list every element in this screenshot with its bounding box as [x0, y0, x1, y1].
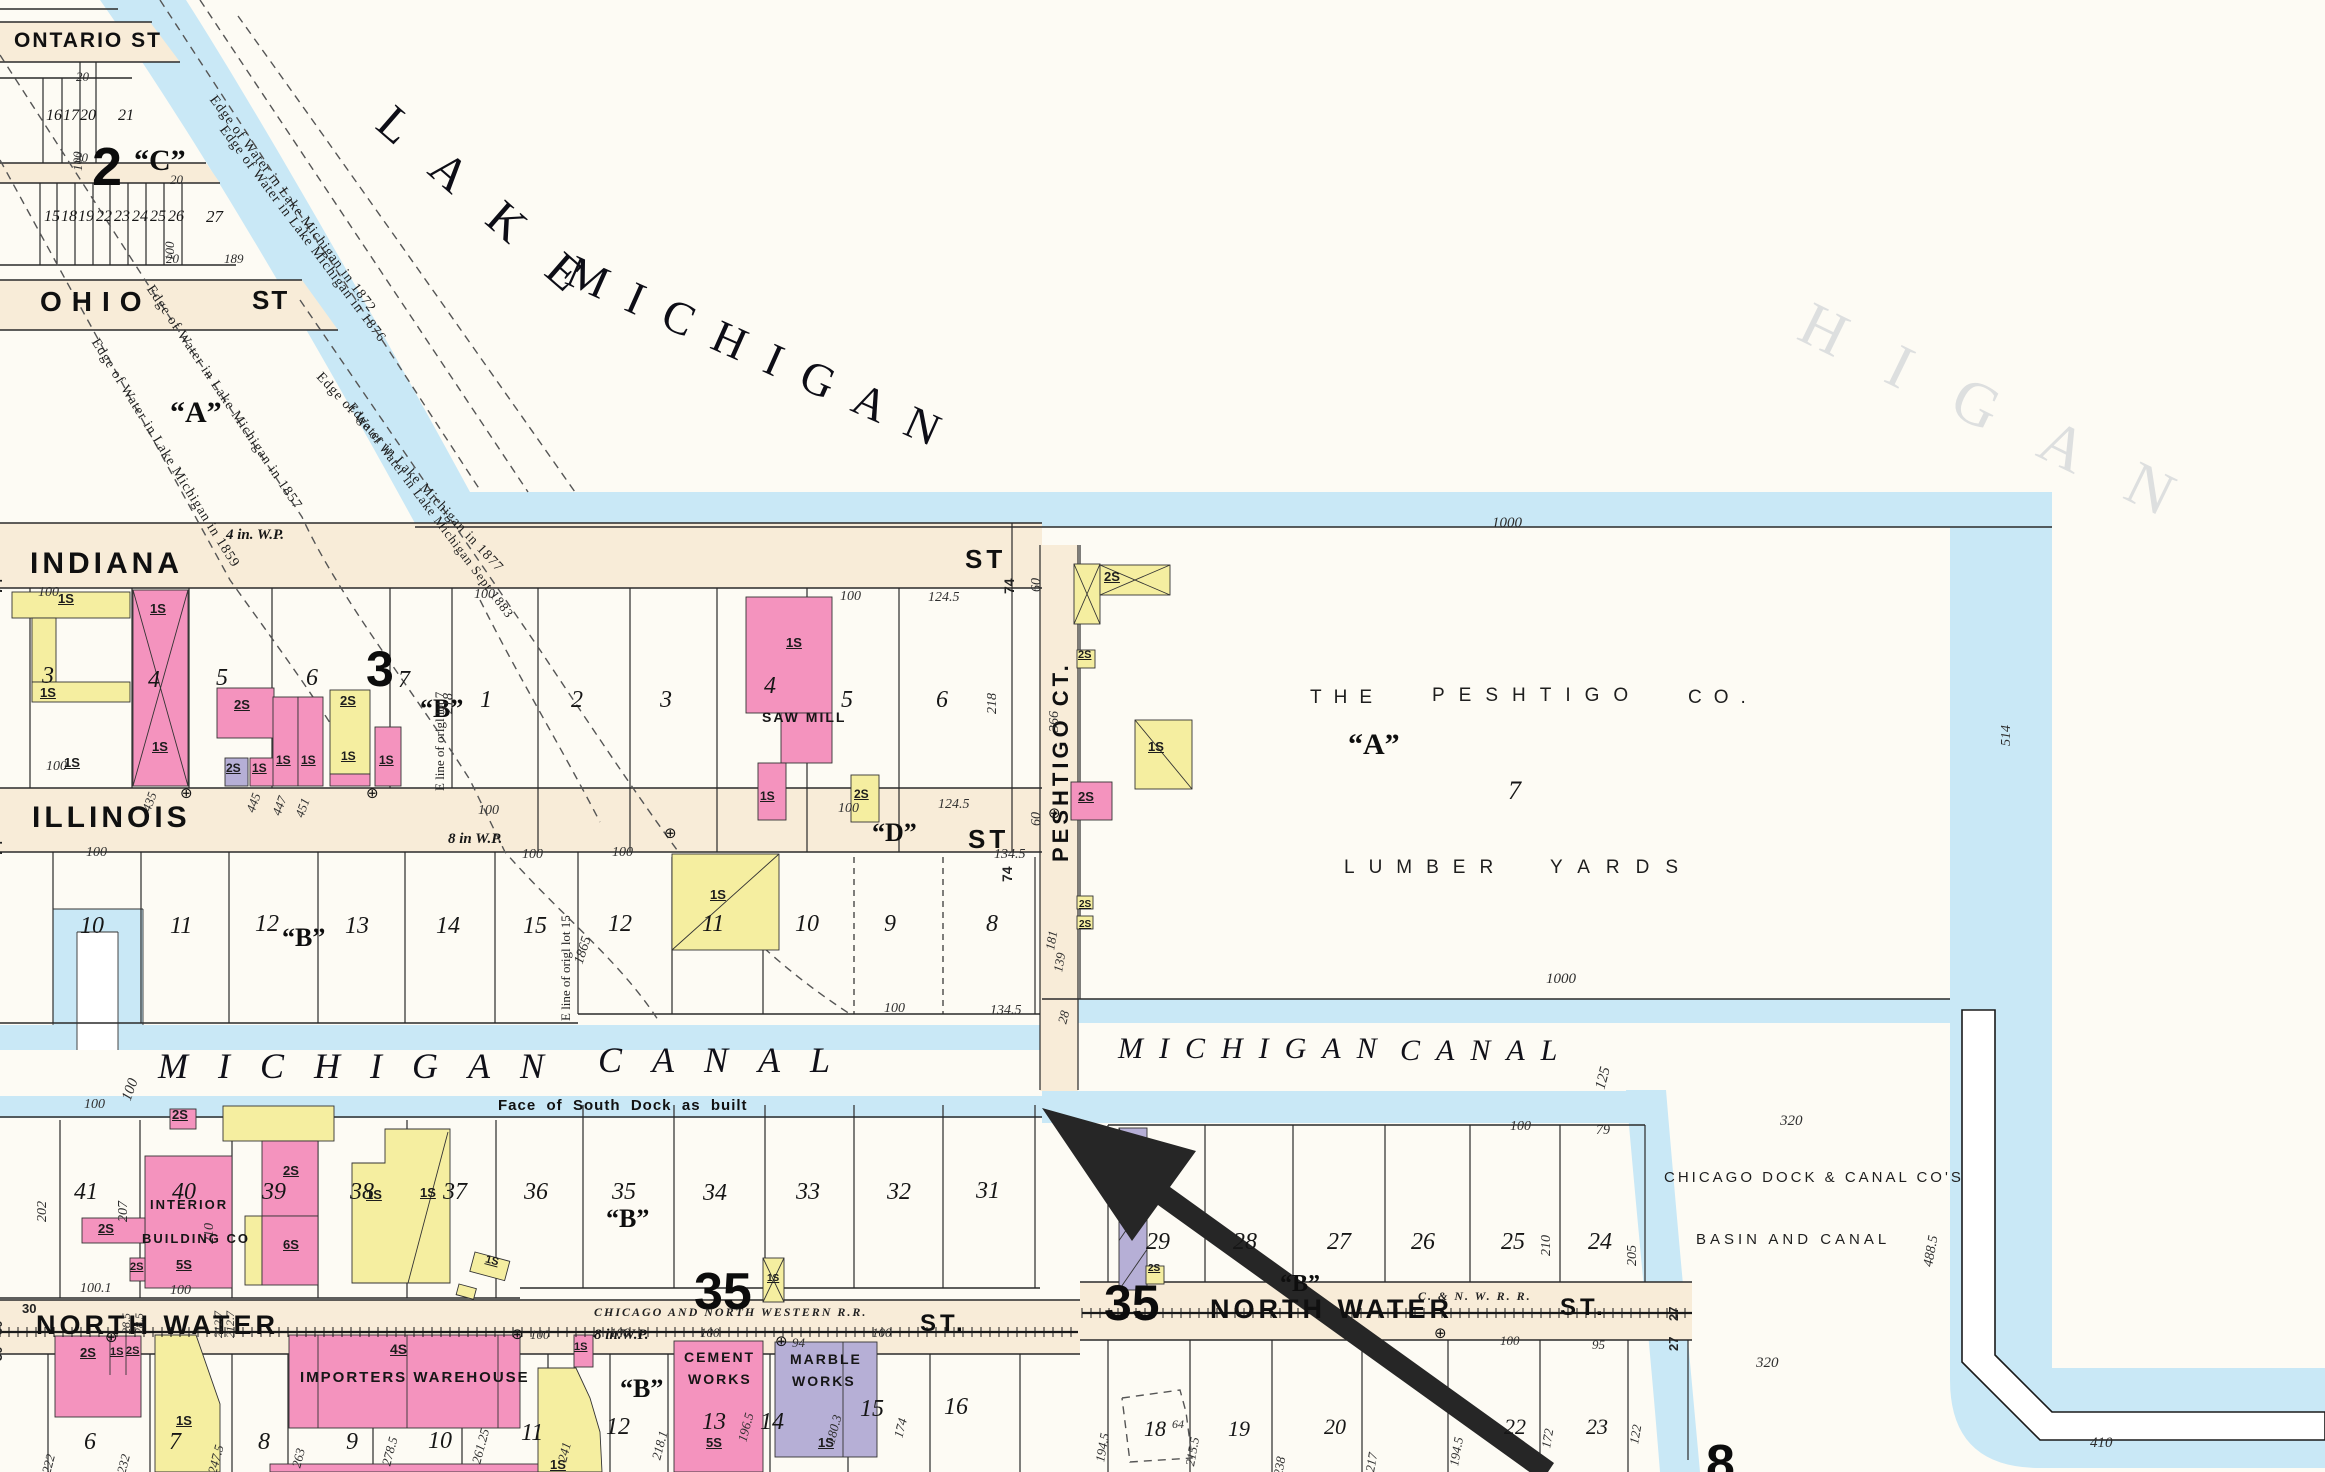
- map-label-1s: 1S: [40, 686, 56, 699]
- map-label-lumber: LUMBER: [1344, 858, 1507, 877]
- map-label-1s: 1S: [176, 1414, 192, 1427]
- map-label-6: 6: [306, 666, 318, 690]
- map-label-edge-of-water-in-lake-michig: Edge of Water in Lake Michigan in 1859: [88, 337, 241, 571]
- map-label-1000: 1000: [1492, 516, 1522, 531]
- map-label-1s: 1S: [64, 756, 80, 769]
- map-label-205: 205: [1626, 1245, 1640, 1266]
- map-label-6s: 6S: [283, 1238, 299, 1251]
- map-label-33: 33: [796, 1180, 820, 1204]
- map-label-11: 11: [170, 914, 192, 938]
- map-label-1s: 1S: [252, 762, 267, 774]
- map-label-100: 100: [474, 588, 495, 602]
- hydrant-icon: ⊕: [1048, 806, 1061, 821]
- map-label-100: 100: [1510, 1120, 1531, 1134]
- map-label-peshtigo-ct: PESHTIGO CT.: [1050, 661, 1072, 862]
- map-label-st: ST: [252, 287, 289, 313]
- map-label-20: 20: [76, 70, 89, 83]
- map-label-100: 100: [84, 1098, 105, 1112]
- map-label-100: 100: [120, 1077, 142, 1103]
- map-label-5: 5: [841, 688, 853, 712]
- map-label-6: 6: [936, 688, 948, 712]
- map-label-22: 22: [1504, 1416, 1526, 1438]
- map-label-28: 28: [1233, 1230, 1257, 1254]
- map-label-215-5: 215.5: [1183, 1436, 1201, 1467]
- map-label-st: ST: [965, 546, 1006, 572]
- hydrant-icon: ⊕: [1434, 1326, 1447, 1341]
- map-label-25: 25: [1501, 1230, 1525, 1254]
- hydrant-icon: ⊕: [511, 1327, 524, 1342]
- map-label-5s: 5S: [176, 1258, 192, 1271]
- map-label-north-water: NORTH WATER: [36, 1312, 279, 1339]
- map-label-21: 21: [118, 108, 134, 124]
- map-label-74: 74: [0, 840, 4, 856]
- map-label-2s: 2S: [80, 1346, 96, 1359]
- map-label-10: 10: [428, 1429, 452, 1453]
- map-label-2: 2: [92, 140, 122, 194]
- map-label-32: 32: [887, 1180, 911, 1204]
- map-label-320: 320: [1756, 1356, 1779, 1371]
- map-label-122: 122: [1627, 1424, 1643, 1445]
- map-label-17: 17: [63, 108, 79, 124]
- map-label-10: 10: [795, 912, 819, 936]
- map-label-2s: 2S: [1148, 1264, 1160, 1274]
- map-label-218-1: 218.1: [649, 1429, 669, 1461]
- map-label-95: 95: [1592, 1338, 1605, 1351]
- map-label-ohio: OHIO: [40, 288, 152, 316]
- map-label-35: 35: [612, 1180, 636, 1204]
- map-label-a: “A”: [1348, 730, 1400, 760]
- map-label-247-5: 247.5: [205, 1443, 225, 1472]
- map-label-8: 8: [258, 1430, 270, 1454]
- map-label-202: 202: [36, 1201, 50, 1222]
- map-label-13: 13: [345, 914, 369, 938]
- map-label-2s: 2S: [234, 698, 250, 711]
- map-label-edge-of-water-in-lake-michig: Edge of Water in Lake Michigan in 1872: [206, 94, 378, 316]
- map-label-5: 5: [216, 666, 228, 690]
- map-label-1s: 1S: [341, 750, 356, 762]
- map-label-100: 100: [522, 848, 543, 862]
- map-label-24: 24: [132, 209, 148, 225]
- map-label-canal: CANAL: [1400, 1036, 1573, 1066]
- map-label-26: 26: [1411, 1230, 1435, 1254]
- map-label-23: 23: [114, 209, 130, 225]
- map-label-174: 174: [891, 1417, 909, 1439]
- map-label-10: 10: [80, 914, 104, 938]
- map-label-14: 14: [436, 914, 460, 938]
- map-label-b: “B”: [606, 1206, 649, 1232]
- map-label-24: 24: [1588, 1230, 1612, 1254]
- map-label-36: 36: [524, 1180, 548, 1204]
- map-label-3: 3: [660, 688, 672, 712]
- map-label-north-water: NORTH WATER: [1210, 1296, 1453, 1323]
- map-label-196-5: 196.5: [735, 1411, 755, 1443]
- map-label-79: 79: [1596, 1124, 1610, 1138]
- map-label-25: 25: [150, 209, 166, 225]
- map-label-41: 41: [74, 1180, 98, 1204]
- map-label-2s: 2S: [98, 1222, 114, 1235]
- map-label-100: 100: [884, 1002, 905, 1016]
- map-label-works: WORKS: [688, 1372, 752, 1386]
- map-label-1s: 1S: [767, 1274, 779, 1284]
- map-label-194-5: 194.5: [1447, 1436, 1465, 1467]
- map-label-2s: 2S: [283, 1164, 299, 1177]
- map-label-st: ST.: [920, 1312, 967, 1336]
- map-label-2: 2: [571, 688, 583, 712]
- map-label-74: 74: [1000, 866, 1014, 882]
- map-label-co: CO.: [1688, 688, 1758, 707]
- map-label-edge-of-water-in-lake-michig: Edge of Water in Lake Michigan in 1857: [143, 283, 304, 512]
- map-label-134-5: 134.5: [994, 848, 1026, 862]
- map-label-2s: 2S: [172, 1108, 188, 1121]
- map-label-5s: 5S: [706, 1436, 722, 1449]
- map-label-1s: 1S: [484, 1254, 500, 1268]
- map-label-1865: 1865: [573, 935, 595, 966]
- map-label-1s: 1S: [786, 636, 802, 649]
- map-label-1s: 1S: [152, 740, 168, 753]
- map-label-212-7: 212.7: [224, 1311, 236, 1338]
- map-label-4: 4: [148, 668, 160, 692]
- map-label-1s: 1S: [710, 888, 726, 901]
- map-label-2s: 2S: [130, 1262, 143, 1273]
- map-label-chicago-dock-canal-co-s: CHICAGO DOCK & CANAL CO'S: [1664, 1170, 1964, 1185]
- hydrant-icon: ⊕: [366, 786, 379, 801]
- hydrant-icon: ⊕: [664, 826, 677, 841]
- map-label-8: 8: [986, 912, 998, 936]
- map-label-29: 29: [1146, 1230, 1170, 1254]
- map-label-451: 451: [293, 796, 312, 819]
- map-label-michigan: MICHIGAN: [1118, 1034, 1393, 1064]
- map-label-263: 263: [289, 1447, 307, 1469]
- map-label-100: 100: [38, 586, 59, 600]
- map-label-peshtigo: PESHTIGO: [1432, 686, 1642, 705]
- map-label-222: 222: [39, 1453, 57, 1472]
- map-label-194-5: 194.5: [1093, 1432, 1111, 1463]
- map-label-11: 11: [702, 912, 724, 936]
- map-label-b: “B”: [620, 1376, 663, 1402]
- map-label-366: 366: [1048, 711, 1062, 732]
- map-label-works: WORKS: [792, 1374, 856, 1388]
- map-label-face-of-south-dock-as-built: Face of South Dock as built: [498, 1098, 748, 1113]
- map-label-a: “A”: [170, 398, 222, 428]
- map-label-7: 7: [1508, 778, 1521, 804]
- map-label-28: 28: [1055, 1009, 1071, 1025]
- map-label-488-5: 488.5: [1922, 1235, 1941, 1268]
- map-label-18: 18: [61, 209, 77, 225]
- map-label-2s: 2S: [1104, 570, 1120, 583]
- map-label-4s: 4S: [390, 1342, 407, 1356]
- map-label-14: 14: [760, 1410, 784, 1434]
- map-label-181: 181: [1043, 930, 1059, 951]
- map-label-1s: 1S: [110, 1347, 123, 1358]
- hydrant-icon: ⊕: [180, 786, 193, 801]
- map-label-st: ST.: [1560, 1296, 1607, 1320]
- map-label-100: 100: [700, 1326, 720, 1339]
- map-label-218: 218: [442, 693, 456, 714]
- map-label-64: 64: [1172, 1418, 1184, 1430]
- map-label-20: 20: [80, 108, 96, 124]
- map-label-1s: 1S: [760, 790, 775, 802]
- map-label-410: 410: [2090, 1436, 2113, 1451]
- map-label-514: 514: [2000, 725, 2014, 746]
- map-label-12: 12: [608, 912, 632, 936]
- map-label-20: 20: [1324, 1416, 1346, 1438]
- map-label-4: 4: [764, 674, 776, 698]
- map-label-cement: CEMENT: [684, 1350, 755, 1364]
- map-label-210: 210: [1540, 1235, 1554, 1256]
- map-label-7: 7: [169, 1430, 181, 1454]
- map-label-1s: 1S: [366, 1188, 382, 1201]
- map-label-13: 13: [702, 1410, 726, 1434]
- map-label-31: 31: [976, 1179, 1000, 1203]
- map-label-9: 9: [346, 1430, 358, 1454]
- map-label-320: 320: [1780, 1114, 1803, 1129]
- map-label-1s: 1S: [150, 602, 166, 615]
- hydrant-icon: ⊕: [105, 1330, 118, 1345]
- map-label-e-line-of-origl-lot-15: E line of origl lot 15: [559, 915, 572, 1021]
- map-label-b: “B”: [282, 925, 325, 951]
- map-label-207: 207: [117, 1201, 131, 1222]
- map-label-241: 241: [555, 1441, 573, 1463]
- map-label-30: 30: [0, 1321, 4, 1335]
- map-label-illinois: ILLINOIS: [32, 803, 191, 833]
- map-label-172: 172: [1539, 1428, 1555, 1449]
- map-label-60: 60: [1030, 812, 1044, 826]
- map-label-1s: 1S: [379, 754, 394, 766]
- map-label-ontario-st: ONTARIO ST: [14, 30, 162, 51]
- map-label-building-co: BUILDING CO: [142, 1232, 250, 1245]
- map-label-basin-and-canal: BASIN AND CANAL: [1696, 1232, 1890, 1247]
- map-label-35: 35: [1104, 1278, 1160, 1328]
- map-label-278-5: 278.5: [379, 1435, 399, 1467]
- map-label-27: 27: [1327, 1230, 1351, 1254]
- map-label-218: 218: [986, 693, 1000, 714]
- map-label-edge-of-water-in-lake-michig: Edge of Water in Lake Michigan in 1876: [216, 124, 388, 346]
- map-label-217: 217: [1363, 1452, 1379, 1472]
- map-label-6: 6: [84, 1430, 96, 1454]
- map-label-30: 30: [0, 1347, 4, 1361]
- map-label-39: 39: [262, 1180, 286, 1204]
- map-label-michigan: MICHIGAN: [560, 248, 969, 464]
- map-label-3: 3: [366, 644, 394, 694]
- map-label-chicago-and-north-western-r-: CHICAGO AND NORTH WESTERN R.R.: [594, 1306, 867, 1318]
- map-label-100: 100: [872, 1326, 892, 1339]
- map-label-1s: 1S: [420, 1186, 436, 1199]
- map-label-12: 12: [255, 912, 279, 936]
- map-label-9: 9: [884, 912, 896, 936]
- map-label-100: 100: [838, 802, 859, 816]
- map-label-higan: HIGAN: [1790, 292, 2230, 549]
- map-label-c-n-w-r-r: C. & N. W. R. R.: [1418, 1290, 1532, 1302]
- map-label-94: 94: [792, 1336, 805, 1349]
- map-label-100-1: 100.1: [80, 1282, 112, 1296]
- map-label-100: 100: [1500, 1334, 1520, 1347]
- map-label-d: “D”: [872, 820, 917, 846]
- map-label-1s: 1S: [58, 592, 74, 605]
- map-label-100: 100: [840, 590, 861, 604]
- map-label-2s: 2S: [340, 694, 356, 707]
- map-label-139: 139: [1051, 952, 1067, 973]
- map-label-180-3: 180.3: [823, 1413, 843, 1445]
- map-label-yards: YARDS: [1550, 858, 1694, 877]
- map-label-11: 11: [521, 1421, 543, 1445]
- map-label-100: 100: [530, 1328, 550, 1341]
- map-label-canal: CANAL: [598, 1042, 860, 1078]
- map-label-8-in-w-p: 8 in W.P.: [448, 832, 502, 847]
- map-label-125: 125: [1594, 1065, 1614, 1091]
- map-label-importers-warehouse: IMPORTERS WAREHOUSE: [300, 1370, 530, 1385]
- map-label-18: 18: [1144, 1418, 1166, 1440]
- map-label-16: 16: [46, 108, 62, 124]
- map-label-27: 27: [1667, 1307, 1680, 1321]
- map-label-interior: INTERIOR: [150, 1198, 228, 1211]
- map-label-100: 100: [612, 846, 633, 860]
- map-label-60: 60: [1030, 578, 1044, 592]
- map-label-2s: 2S: [126, 1346, 139, 1357]
- map-label-15: 15: [860, 1397, 884, 1421]
- map-label-445: 445: [244, 791, 263, 814]
- map-label-447: 447: [270, 794, 289, 817]
- map-label-189: 189: [224, 252, 244, 265]
- map-label-20: 20: [75, 151, 88, 164]
- map-label-2s: 2S: [1078, 790, 1094, 803]
- map-label-20: 20: [166, 252, 179, 265]
- map-label-27: 27: [206, 208, 223, 225]
- map-label-23: 23: [1586, 1416, 1608, 1438]
- map-label-134-5: 134.5: [990, 1004, 1022, 1018]
- map-label-1s: 1S: [276, 754, 291, 766]
- map-label-20: 20: [170, 173, 183, 186]
- map-label-layer: ONTARIO STOHIOSTINDIANASTILLINOISSTNORTH…: [0, 0, 2325, 1472]
- map-label-4-in-w-p: 4 in. W.P.: [226, 528, 284, 543]
- map-label-100: 100: [478, 804, 499, 818]
- map-label-28-5: 28.5: [133, 1313, 145, 1334]
- map-label-19: 19: [1228, 1418, 1250, 1440]
- map-label-19: 19: [78, 209, 94, 225]
- map-label-1s: 1S: [301, 754, 316, 766]
- map-label-saw-mill: SAW MILL: [762, 710, 846, 724]
- map-label-2s: 2S: [226, 762, 241, 774]
- map-label-30: 30: [22, 1302, 36, 1315]
- map-label-1s: 1S: [1148, 740, 1164, 753]
- map-label-2s: 2S: [1079, 900, 1091, 910]
- map-label-1000: 1000: [1546, 972, 1576, 987]
- hydrant-icon: ⊕: [775, 1334, 788, 1349]
- map-label-michigan: MICHIGAN: [158, 1048, 574, 1084]
- map-label-34: 34: [703, 1181, 727, 1205]
- map-label-261-25: 261.25: [469, 1427, 491, 1465]
- map-label-37: 37: [443, 1180, 467, 1204]
- map-label-7: 7: [398, 668, 410, 692]
- map-label-2s: 2S: [854, 788, 869, 800]
- sanborn-map-canvas: ONTARIO STOHIOSTINDIANASTILLINOISSTNORTH…: [0, 0, 2325, 1472]
- map-label-16: 16: [944, 1395, 968, 1419]
- map-label-15: 15: [523, 914, 547, 938]
- map-label-124-5: 124.5: [938, 798, 970, 812]
- map-label-106: 106: [610, 1326, 630, 1339]
- map-label-15: 15: [44, 209, 60, 225]
- map-label-12: 12: [606, 1415, 630, 1439]
- map-label-b: “B”: [1280, 1272, 1320, 1296]
- map-label-indiana: INDIANA: [30, 549, 183, 579]
- map-label-the: THE: [1310, 688, 1384, 707]
- map-label-74: 74: [0, 578, 4, 594]
- map-label-238: 238: [1271, 1456, 1287, 1472]
- map-label-22: 22: [96, 209, 112, 225]
- map-label-28-5: 28.5: [120, 1313, 132, 1334]
- map-label-74: 74: [1002, 578, 1016, 594]
- map-label-2s: 2S: [1079, 920, 1091, 930]
- map-label-26: 26: [168, 209, 184, 225]
- map-label-1s: 1S: [574, 1342, 587, 1353]
- map-label-27: 27: [1667, 1337, 1680, 1351]
- map-label-1: 1: [480, 688, 492, 712]
- map-label-100: 100: [170, 1284, 191, 1298]
- map-label-100: 100: [86, 846, 107, 860]
- map-label-232: 232: [114, 1453, 132, 1472]
- map-label-8: 8: [1706, 1438, 1735, 1472]
- map-label-2s: 2S: [1078, 650, 1091, 661]
- map-label-marble: MARBLE: [790, 1352, 862, 1366]
- map-label-124-5: 124.5: [928, 591, 960, 605]
